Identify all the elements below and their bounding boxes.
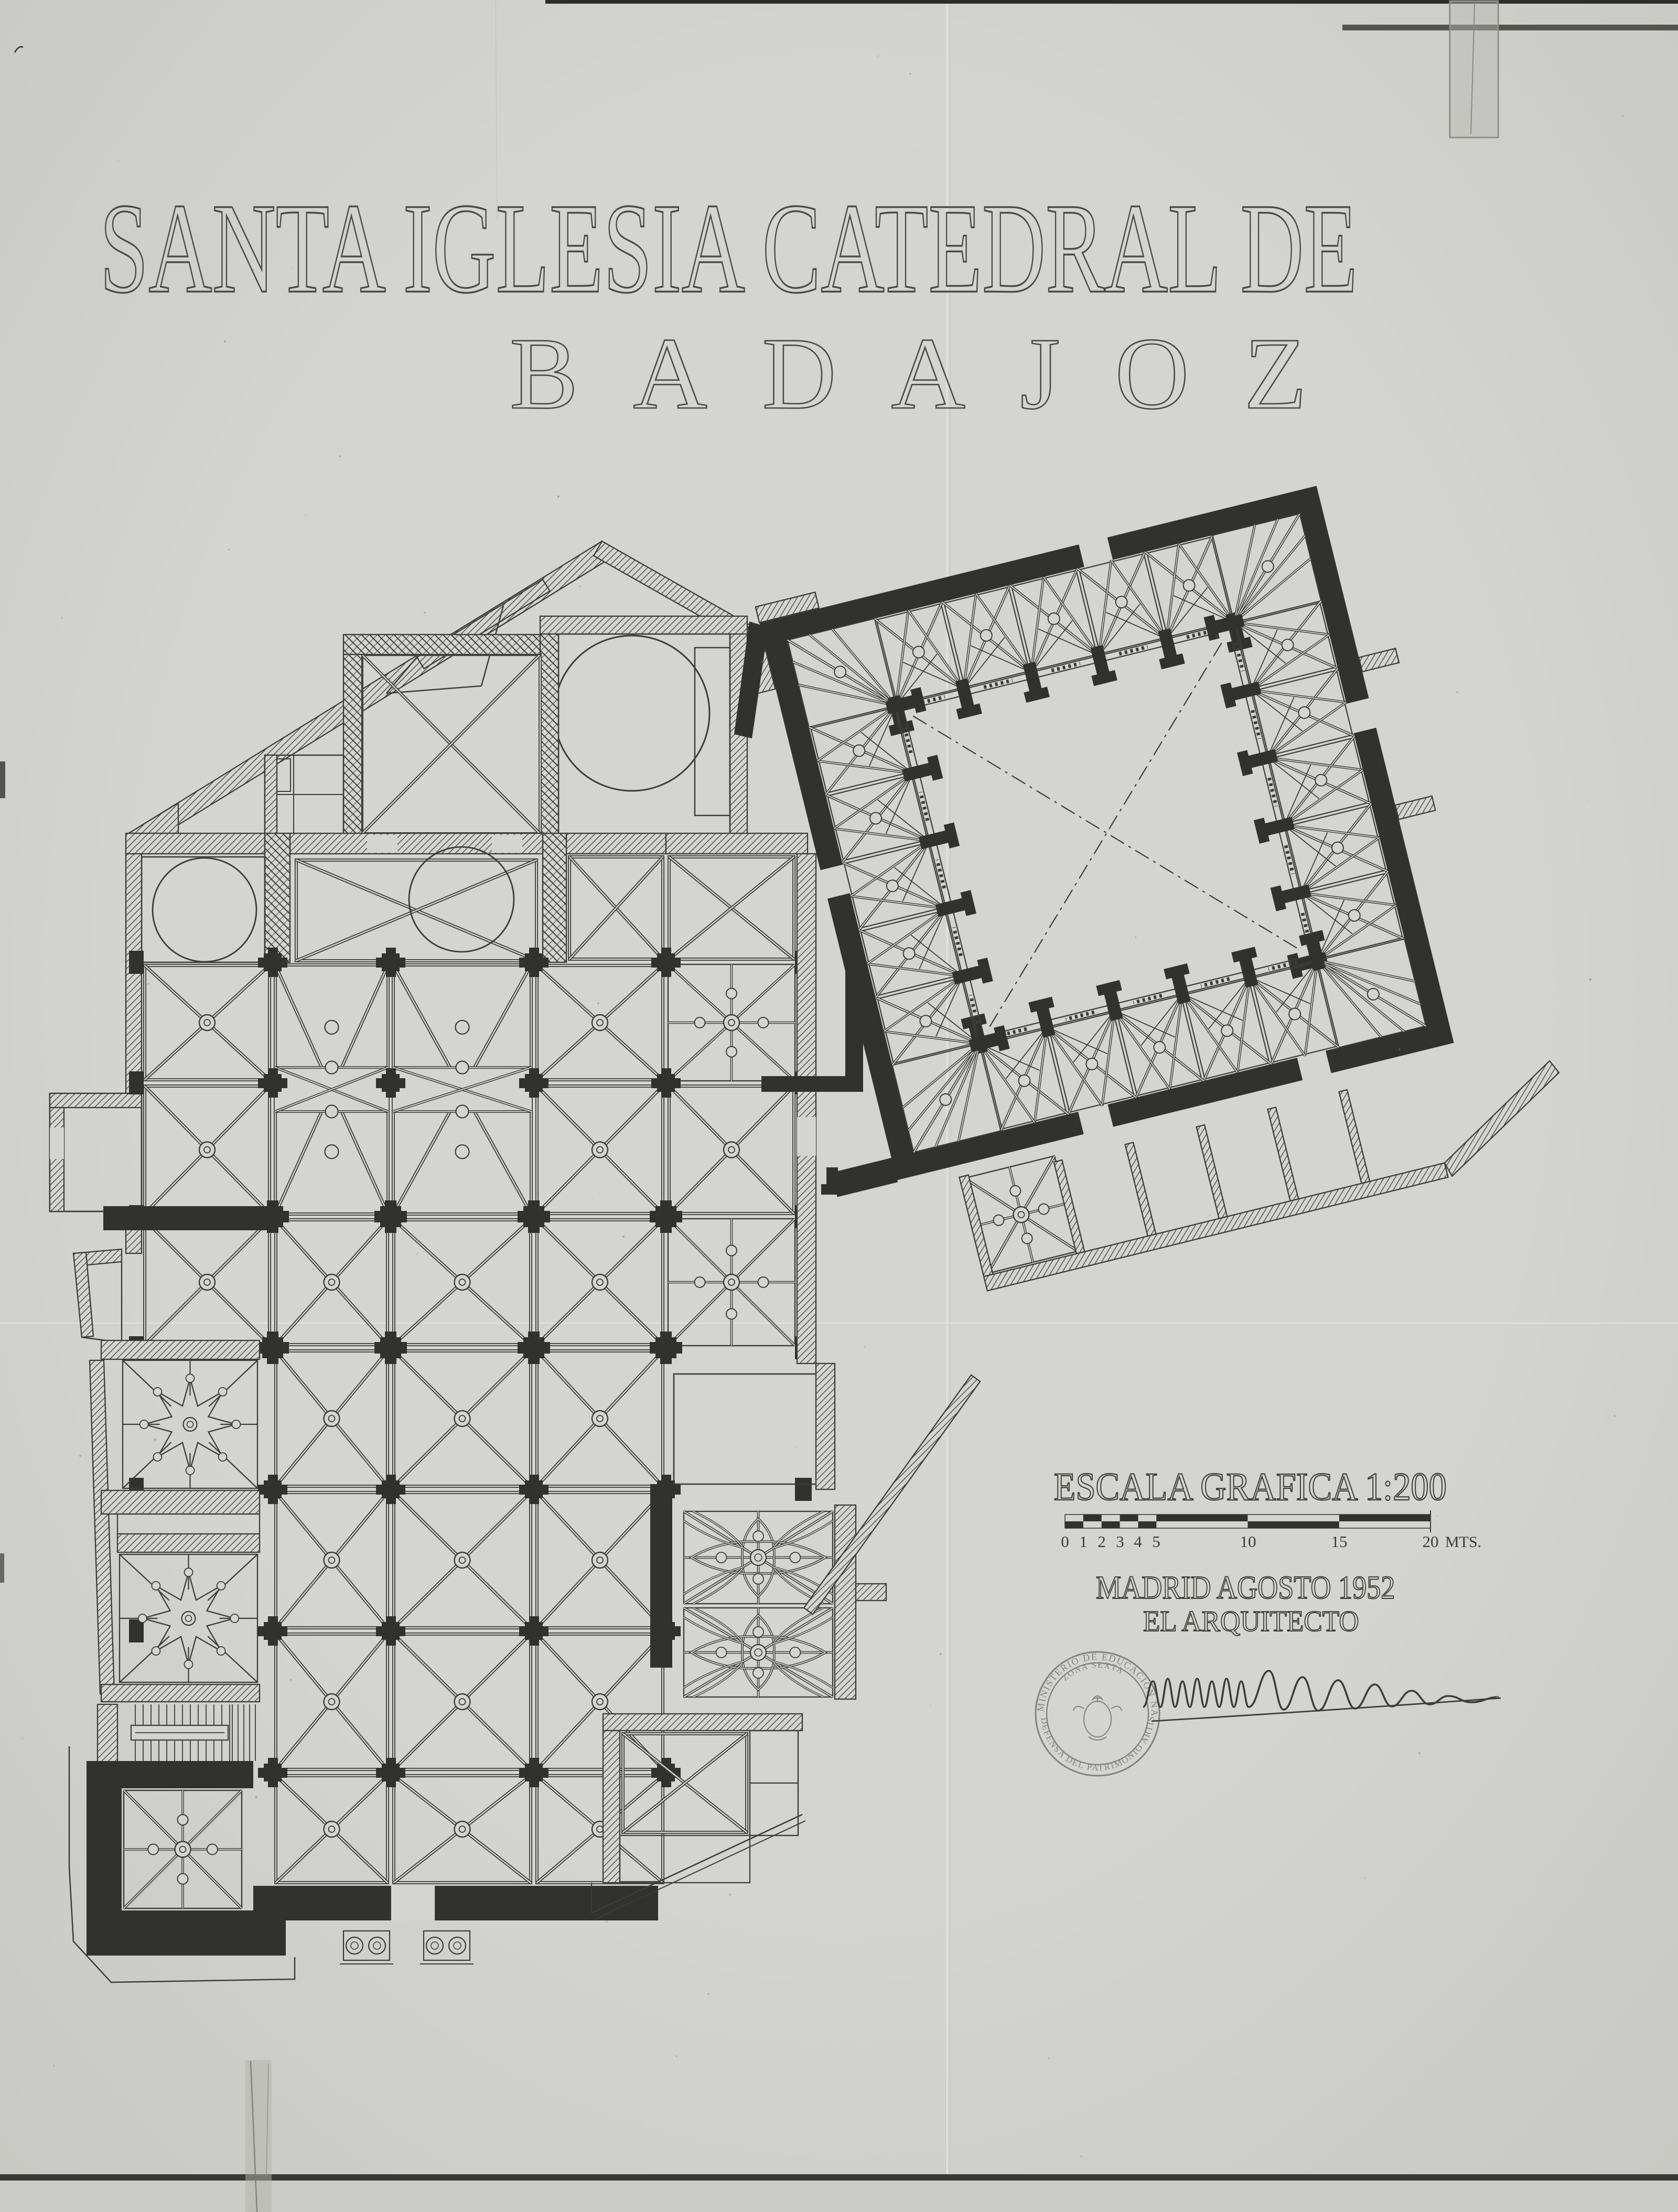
svg-text:3: 3 bbox=[1116, 1532, 1124, 1551]
svg-text:2: 2 bbox=[1098, 1532, 1106, 1551]
svg-text:SANTA IGLESIA CATEDRAL DE: SANTA IGLESIA CATEDRAL DE bbox=[100, 176, 1358, 319]
svg-text:10: 10 bbox=[1240, 1532, 1256, 1551]
svg-text:20: 20 bbox=[1423, 1532, 1439, 1551]
svg-text:15: 15 bbox=[1331, 1532, 1348, 1551]
svg-text:MTS.: MTS. bbox=[1445, 1533, 1481, 1551]
svg-text:4: 4 bbox=[1134, 1532, 1142, 1551]
svg-text:0: 0 bbox=[1061, 1532, 1069, 1551]
svg-text:EL ARQUITECTO: EL ARQUITECTO bbox=[1143, 1605, 1359, 1638]
svg-text:ESCALA GRAFICA 1:200: ESCALA GRAFICA 1:200 bbox=[1054, 1465, 1447, 1509]
svg-text:MADRID AGOSTO 1952: MADRID AGOSTO 1952 bbox=[1096, 1570, 1395, 1606]
svg-text:5: 5 bbox=[1152, 1532, 1160, 1551]
svg-text:1: 1 bbox=[1079, 1532, 1088, 1551]
